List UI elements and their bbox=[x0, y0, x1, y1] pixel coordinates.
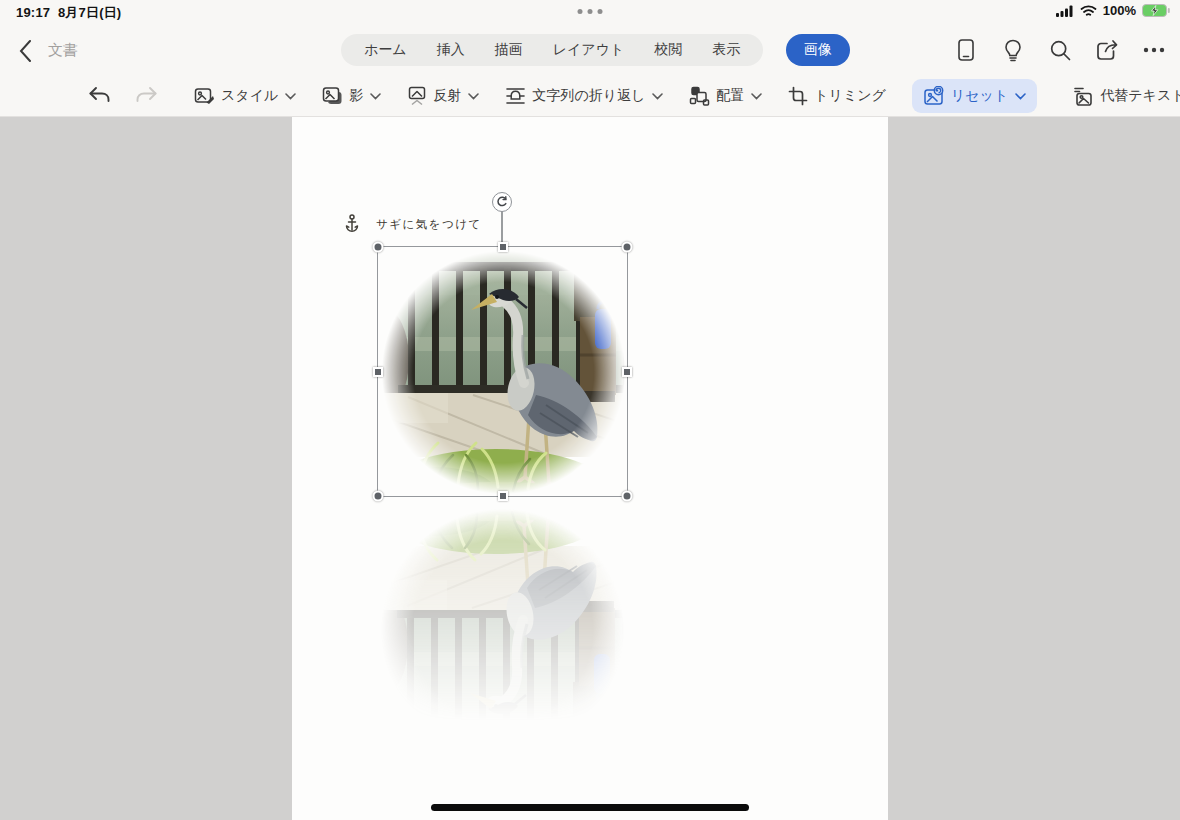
picture-reset-icon bbox=[923, 86, 945, 106]
tips-button[interactable] bbox=[1001, 38, 1025, 62]
picture-style-icon bbox=[194, 86, 215, 106]
ribbon-tabs: ホーム 挿入 描画 レイアウト 校閲 表示 bbox=[341, 34, 763, 66]
resize-handle-bottom-left[interactable] bbox=[373, 491, 384, 502]
heron-picture[interactable] bbox=[378, 247, 629, 498]
chevron-down-icon bbox=[468, 93, 479, 100]
tab-home[interactable]: ホーム bbox=[349, 34, 422, 66]
share-icon bbox=[1096, 39, 1119, 61]
multitask-dots-icon[interactable] bbox=[578, 9, 603, 14]
search-icon bbox=[1050, 40, 1071, 61]
reset-picture-button[interactable]: リセット bbox=[912, 79, 1037, 113]
word-ipad-screen: 19:17 8月7日(日) 100% bbox=[0, 0, 1180, 820]
status-bar: 19:17 8月7日(日) 100% bbox=[0, 0, 1180, 24]
reset-label: リセット bbox=[951, 87, 1008, 105]
share-button[interactable] bbox=[1095, 38, 1119, 62]
tab-view[interactable]: 表示 bbox=[697, 34, 755, 66]
document-title[interactable]: 文書 bbox=[48, 41, 78, 60]
redo-button[interactable] bbox=[135, 84, 158, 108]
resize-handle-bottom-center[interactable] bbox=[498, 491, 508, 501]
top-chrome: 19:17 8月7日(日) 100% bbox=[0, 0, 1180, 117]
crop-label: トリミング bbox=[814, 87, 886, 105]
chevron-down-icon bbox=[1015, 93, 1026, 100]
alt-text-icon bbox=[1073, 86, 1094, 107]
shadow-label: 影 bbox=[349, 87, 363, 105]
phone-icon bbox=[958, 39, 974, 61]
tab-review[interactable]: 校閲 bbox=[639, 34, 697, 66]
tab-insert[interactable]: 挿入 bbox=[422, 34, 480, 66]
more-button[interactable] bbox=[1142, 38, 1166, 62]
chevron-down-icon bbox=[285, 93, 296, 100]
arrange-icon bbox=[689, 86, 710, 106]
alt-text-button[interactable]: 代替テキスト bbox=[1073, 86, 1180, 107]
resize-handle-bottom-right[interactable] bbox=[622, 491, 633, 502]
picture-styles-label: スタイル bbox=[221, 87, 278, 105]
ellipsis-icon bbox=[1143, 47, 1165, 53]
text-wrap-label: 文字列の折り返し bbox=[532, 87, 645, 105]
resize-handle-top-right[interactable] bbox=[622, 242, 633, 253]
nav-bar: 文書 ホーム 挿入 描画 レイアウト 校閲 表示 画像 bbox=[0, 24, 1180, 76]
cellular-signal-icon bbox=[1056, 5, 1074, 17]
tab-layout[interactable]: レイアウト bbox=[538, 34, 640, 66]
back-button[interactable] bbox=[12, 38, 38, 64]
resize-handle-middle-right[interactable] bbox=[622, 367, 632, 377]
arrange-button[interactable]: 配置 bbox=[689, 86, 762, 106]
crop-button[interactable]: トリミング bbox=[788, 86, 886, 106]
battery-charging-icon bbox=[1142, 4, 1170, 17]
date: 8月7日(日) bbox=[58, 5, 122, 20]
rotate-handle[interactable] bbox=[492, 192, 512, 212]
chevron-left-icon bbox=[19, 40, 32, 62]
resize-handle-middle-left[interactable] bbox=[373, 367, 383, 377]
clock: 19:17 bbox=[16, 5, 50, 20]
chevron-down-icon bbox=[751, 93, 762, 100]
status-time-date: 19:17 8月7日(日) bbox=[16, 4, 121, 22]
crop-icon bbox=[788, 86, 808, 106]
picture-styles-button[interactable]: スタイル bbox=[194, 86, 296, 106]
rotate-handle-icon bbox=[496, 196, 508, 208]
document-page: サギに気をつけて bbox=[292, 117, 888, 820]
anchor-icon[interactable] bbox=[345, 214, 359, 233]
home-indicator[interactable] bbox=[431, 804, 749, 811]
wifi-icon bbox=[1080, 5, 1097, 17]
tab-draw[interactable]: 描画 bbox=[480, 34, 538, 66]
battery-percent: 100% bbox=[1103, 3, 1136, 18]
picture-shadow-icon bbox=[322, 86, 343, 106]
text-wrap-button[interactable]: 文字列の折り返し bbox=[505, 86, 663, 106]
undo-button[interactable] bbox=[88, 84, 111, 108]
chevron-down-icon bbox=[370, 93, 381, 100]
search-button[interactable] bbox=[1048, 38, 1072, 62]
resize-handle-top-left[interactable] bbox=[373, 242, 384, 253]
undo-icon bbox=[88, 86, 111, 106]
picture-toolbar: スタイル 影 反射 bbox=[0, 76, 1180, 116]
chevron-down-icon bbox=[652, 93, 663, 100]
picture-reflection-icon bbox=[407, 86, 427, 106]
arrange-label: 配置 bbox=[716, 87, 744, 105]
picture-selection-frame bbox=[377, 246, 628, 497]
reflection-label: 反射 bbox=[433, 87, 461, 105]
text-wrap-icon bbox=[505, 86, 526, 106]
resize-handle-top-center[interactable] bbox=[498, 242, 508, 252]
shadow-button[interactable]: 影 bbox=[322, 86, 381, 106]
lightbulb-icon bbox=[1004, 39, 1022, 62]
reflection-button[interactable]: 反射 bbox=[407, 86, 479, 106]
document-canvas[interactable]: サギに気をつけて bbox=[0, 117, 1180, 820]
picture-reflection bbox=[377, 505, 628, 756]
redo-icon bbox=[135, 86, 158, 106]
image-caption: サギに気をつけて bbox=[376, 217, 482, 232]
mobile-view-button[interactable] bbox=[954, 38, 978, 62]
alt-text-label: 代替テキスト bbox=[1100, 87, 1180, 105]
tab-picture-active[interactable]: 画像 bbox=[786, 34, 850, 66]
